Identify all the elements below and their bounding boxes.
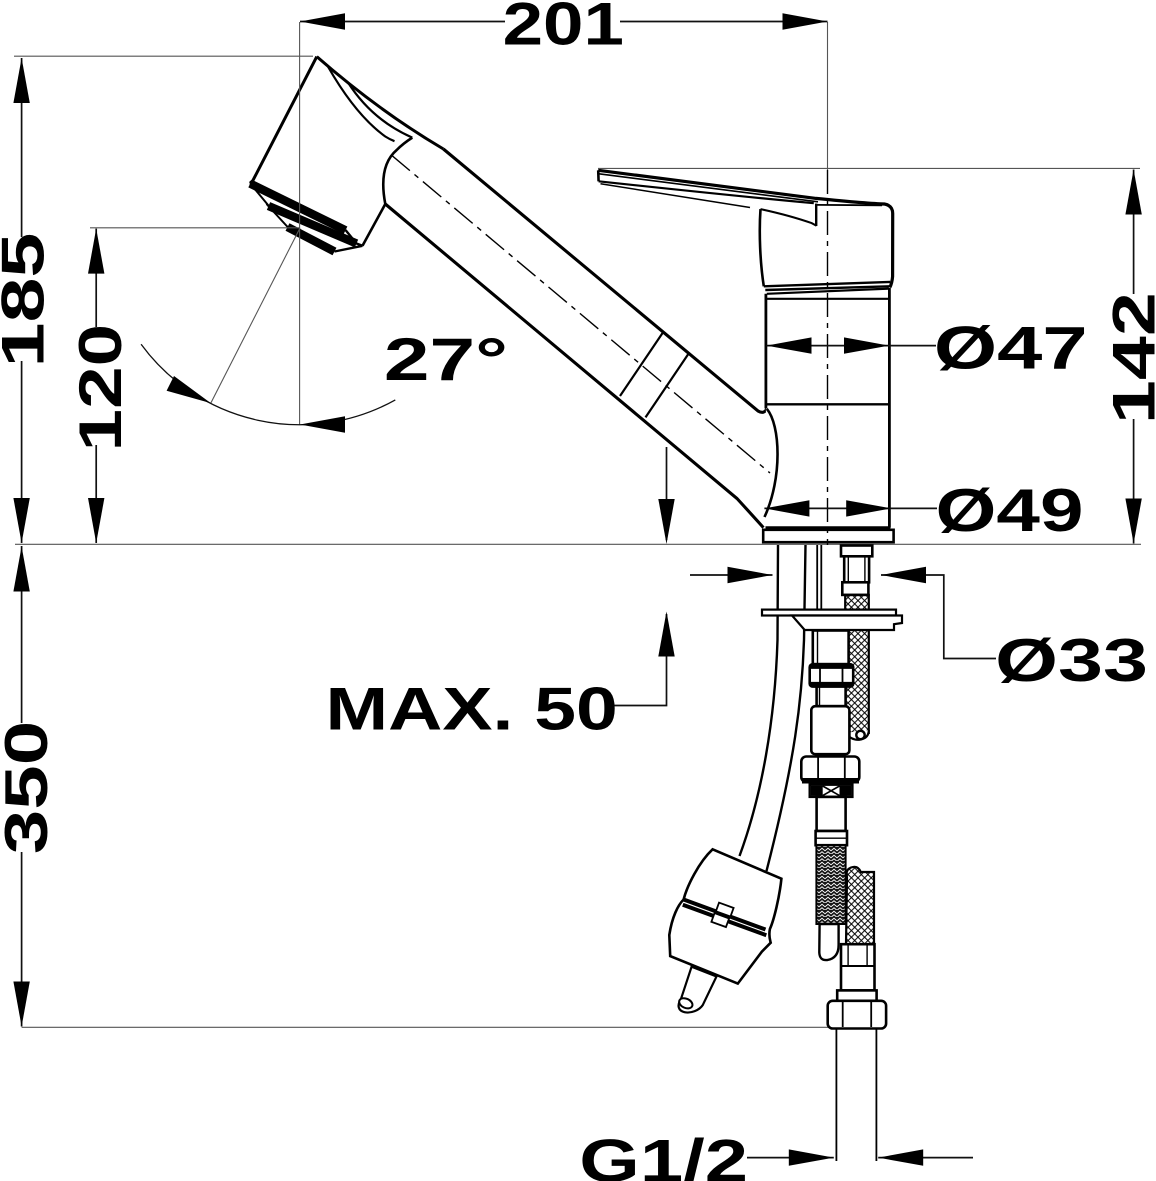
svg-text:185: 185 xyxy=(0,233,57,368)
svg-text:142: 142 xyxy=(1101,292,1156,424)
svg-text:120: 120 xyxy=(67,324,134,452)
svg-text:G1/2: G1/2 xyxy=(579,1128,748,1181)
svg-text:Ø49: Ø49 xyxy=(936,477,1084,544)
svg-text:Ø47: Ø47 xyxy=(934,315,1088,382)
svg-text:Ø33: Ø33 xyxy=(995,627,1148,694)
svg-text:MAX. 50: MAX. 50 xyxy=(326,676,618,743)
svg-text:201: 201 xyxy=(503,0,624,57)
svg-text:27°: 27° xyxy=(384,326,508,393)
svg-text:350: 350 xyxy=(0,721,60,855)
